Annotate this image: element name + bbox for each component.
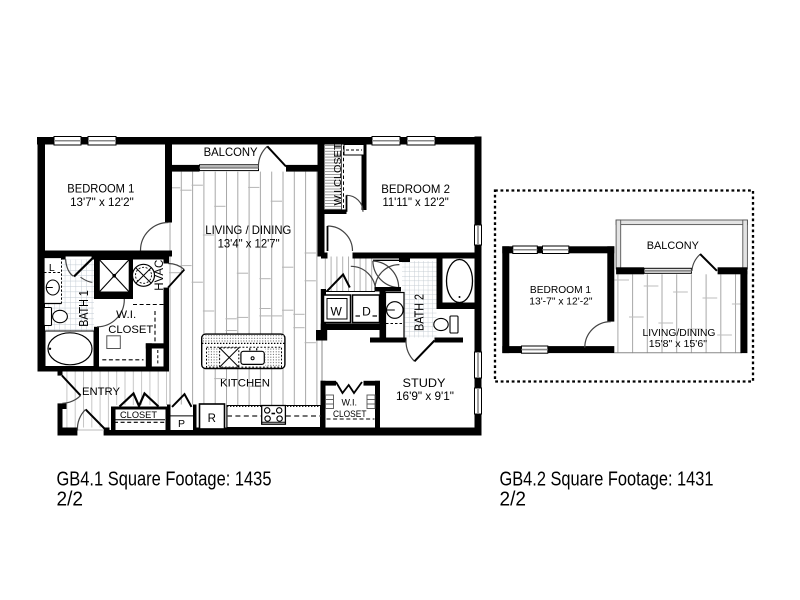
svg-text:BATH 2: BATH 2 [413, 294, 427, 331]
svg-text:13'-7" x 12'-2": 13'-7" x 12'-2" [529, 296, 592, 308]
svg-text:BALCONY: BALCONY [204, 145, 258, 159]
svg-text:13'4" x 12'7": 13'4" x 12'7" [218, 238, 280, 251]
svg-text:GB4.2 Square Footage: 1431: GB4.2 Square Footage: 1431 [500, 469, 714, 491]
svg-text:13'7" x 12'2": 13'7" x 12'2" [70, 196, 134, 209]
svg-text:W: W [331, 304, 343, 318]
svg-text:D: D [362, 304, 371, 318]
svg-text:STUDY: STUDY [403, 377, 446, 390]
svg-text:16'9" x 9'1": 16'9" x 9'1" [396, 390, 454, 403]
svg-text:15'8" x 15'6": 15'8" x 15'6" [649, 338, 707, 350]
svg-text:BALCONY: BALCONY [647, 240, 700, 252]
svg-text:BEDROOM 1: BEDROOM 1 [530, 284, 591, 296]
svg-text:ENTRY: ENTRY [82, 386, 121, 398]
svg-text:W.I.: W.I. [342, 398, 358, 408]
svg-text:GB4.1 Square Footage: 1435: GB4.1 Square Footage: 1435 [57, 469, 272, 491]
svg-text:BATH 1: BATH 1 [77, 290, 91, 327]
svg-text:CLOSET: CLOSET [120, 410, 157, 420]
svg-text:P: P [178, 418, 185, 430]
svg-text:CLOSET: CLOSET [333, 409, 367, 419]
svg-text:2/2: 2/2 [500, 489, 527, 511]
svg-text:W.I.CLOSET: W.I.CLOSET [333, 144, 344, 206]
svg-text:LIVING / DINING: LIVING / DINING [205, 224, 291, 237]
svg-text:HVAC: HVAC [152, 259, 166, 290]
svg-text:R: R [208, 413, 216, 425]
svg-text:CLOSET: CLOSET [108, 324, 153, 336]
svg-text:11'11" x 12'2": 11'11" x 12'2" [382, 196, 448, 209]
svg-text:2/2: 2/2 [57, 489, 84, 511]
svg-text:L: L [49, 262, 55, 274]
svg-text:BEDROOM 1: BEDROOM 1 [67, 183, 134, 196]
svg-text:BEDROOM 2: BEDROOM 2 [381, 183, 450, 196]
svg-text:KITCHEN: KITCHEN [220, 377, 270, 389]
svg-text:W.I.: W.I. [116, 309, 136, 321]
